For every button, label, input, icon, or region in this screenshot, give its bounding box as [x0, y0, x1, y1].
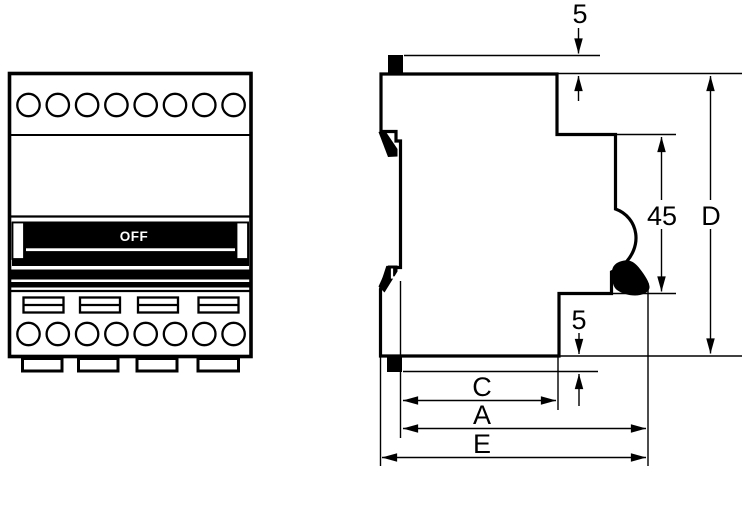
- dimension-depth: D: [697, 76, 725, 354]
- terminal-slot: [24, 298, 64, 313]
- mounting-foot: [23, 359, 63, 372]
- dimension-top-protrusion: 5: [572, 0, 587, 101]
- dimension-label: E: [473, 429, 491, 459]
- dimension-label: 5: [572, 0, 587, 29]
- dimension-width-c: C: [403, 372, 556, 402]
- side-view: 5 5 45 D C A: [379, 0, 743, 466]
- drawing-page: OFF: [0, 0, 745, 516]
- switch-side-tab-right: [237, 223, 249, 260]
- dimension-label: D: [701, 201, 721, 231]
- switch-side-tab-left: [13, 223, 25, 260]
- technical-drawing-canvas: OFF: [0, 0, 745, 516]
- mounting-foot: [137, 359, 177, 372]
- dimension-width-a: A: [403, 400, 646, 430]
- lower-band-2: [11, 282, 250, 288]
- breaker-front-outline: [10, 74, 252, 357]
- breaker-side-profile: [381, 74, 636, 356]
- mounting-feet: [23, 359, 239, 372]
- mounting-foot: [198, 359, 239, 372]
- lower-band-1: [11, 270, 250, 280]
- dimension-label: C: [472, 372, 492, 402]
- dimension-label: 45: [647, 201, 677, 231]
- terminal-slot: [80, 298, 120, 313]
- terminal-screw-top: [388, 55, 403, 74]
- off-switch-label: OFF: [120, 229, 149, 244]
- toggle-lever-tip: [612, 260, 650, 295]
- toggle-bottom-gap: [26, 248, 235, 251]
- dimension-label: A: [473, 400, 491, 430]
- din-clip-bottom: [379, 266, 398, 293]
- front-view: OFF: [10, 74, 252, 372]
- terminal-screw-bottom: [387, 358, 402, 373]
- dimension-label: 5: [571, 305, 586, 335]
- mounting-foot: [79, 359, 119, 372]
- terminal-slot: [138, 298, 178, 313]
- terminal-slot: [199, 298, 239, 313]
- dimension-front-height: 45: [645, 137, 678, 292]
- dimension-width-e: E: [382, 429, 646, 459]
